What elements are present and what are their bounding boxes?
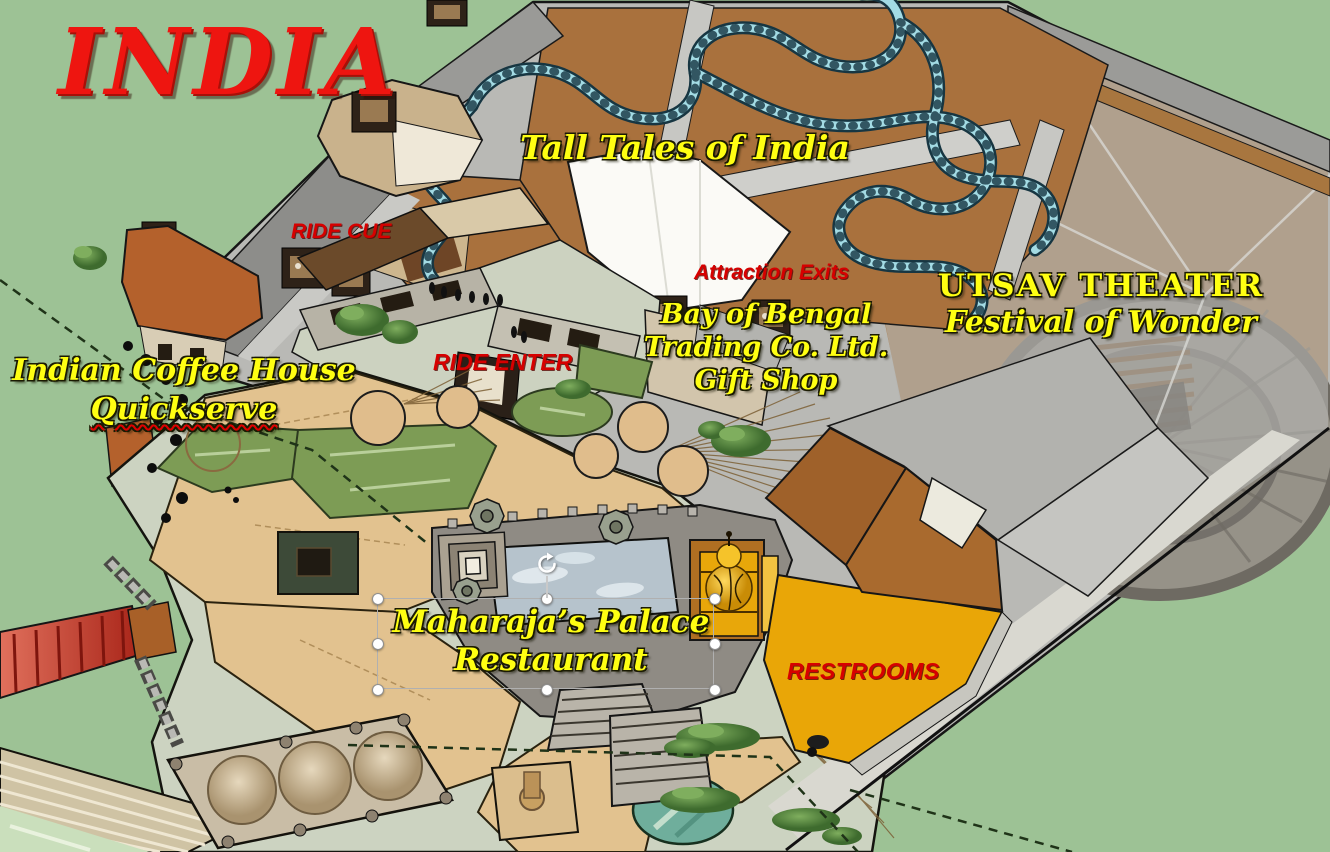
coffee-house-line1: Indian Coffee House — [8, 351, 360, 390]
coffee-house-label[interactable]: Indian Coffee House Quickserve — [8, 351, 360, 429]
gift-shop-line2: Trading Co. Ltd. — [640, 332, 892, 365]
attraction-label[interactable]: Tall Tales of India — [510, 128, 860, 167]
coffee-house-line2: Quickserve — [8, 390, 360, 429]
selection-handle-se[interactable] — [709, 684, 721, 696]
tree — [73, 246, 107, 270]
restrooms-label[interactable]: RESTROOMS — [787, 658, 940, 685]
selection-handle-ne[interactable] — [709, 593, 721, 605]
selection-handle-w[interactable] — [372, 638, 384, 650]
gift-shop-line1: Bay of Bengal — [640, 299, 892, 332]
ride-entrance-label[interactable]: RIDE ENTER — [433, 349, 572, 376]
theater-show-name: Festival of Wonder — [930, 305, 1272, 340]
selection-handle-nw[interactable] — [372, 593, 384, 605]
rotate-handle-icon[interactable] — [534, 551, 560, 577]
column-fountain — [492, 762, 578, 840]
selection-handle-sw[interactable] — [372, 684, 384, 696]
selection-handle-e[interactable] — [709, 638, 721, 650]
selection-box[interactable] — [377, 598, 714, 689]
ride-queue-label[interactable]: RIDE CUE — [291, 220, 391, 244]
attraction-exits-label[interactable]: Attraction Exits — [694, 261, 849, 285]
gift-shop-line3: Gift Shop — [640, 365, 892, 398]
spellcheck-underlined-word: Quickserve — [91, 392, 278, 427]
selection-handle-s[interactable] — [541, 684, 553, 696]
theater-label[interactable]: UTSAV THEATER Festival of Wonder — [930, 268, 1272, 340]
sunken-planter — [278, 532, 358, 594]
tree — [660, 787, 740, 813]
tower — [427, 0, 467, 26]
gift-shop-label[interactable]: Bay of Bengal Trading Co. Ltd. Gift Shop — [640, 299, 892, 398]
land-title[interactable]: INDIA — [58, 14, 399, 111]
tree — [555, 379, 591, 399]
theme-park-map-slide: INDIA Tall Tales of India RIDE CUE Attra… — [0, 0, 1330, 852]
theater-name: UTSAV THEATER — [930, 268, 1272, 305]
rotate-handle-stem — [546, 576, 548, 598]
